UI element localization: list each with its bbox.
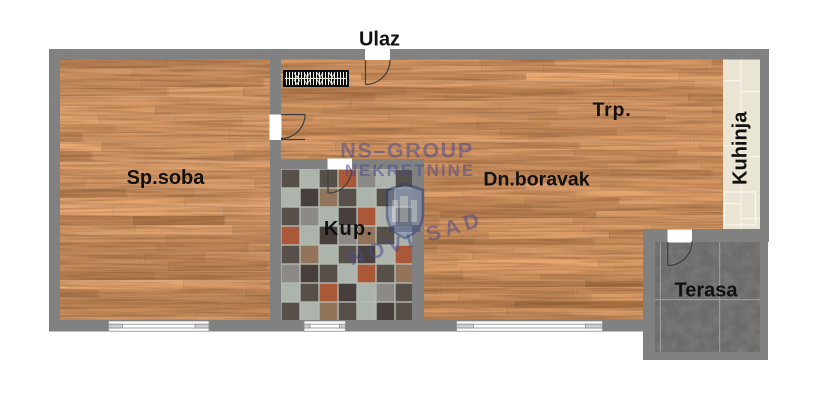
svg-text:Dn.boravak: Dn.boravak bbox=[483, 168, 589, 190]
svg-text:Terasa: Terasa bbox=[674, 280, 738, 302]
svg-text:NEKRETNINE: NEKRETNINE bbox=[345, 161, 476, 180]
svg-text:Ulaz: Ulaz bbox=[359, 29, 400, 51]
svg-text:Kup.: Kup. bbox=[324, 218, 373, 240]
svg-text:Sp.soba: Sp.soba bbox=[127, 167, 206, 189]
svg-text:Trp.: Trp. bbox=[593, 99, 632, 121]
svg-text:NS–GROUP: NS–GROUP bbox=[340, 139, 473, 163]
svg-text:Kuhinja: Kuhinja bbox=[730, 111, 752, 185]
